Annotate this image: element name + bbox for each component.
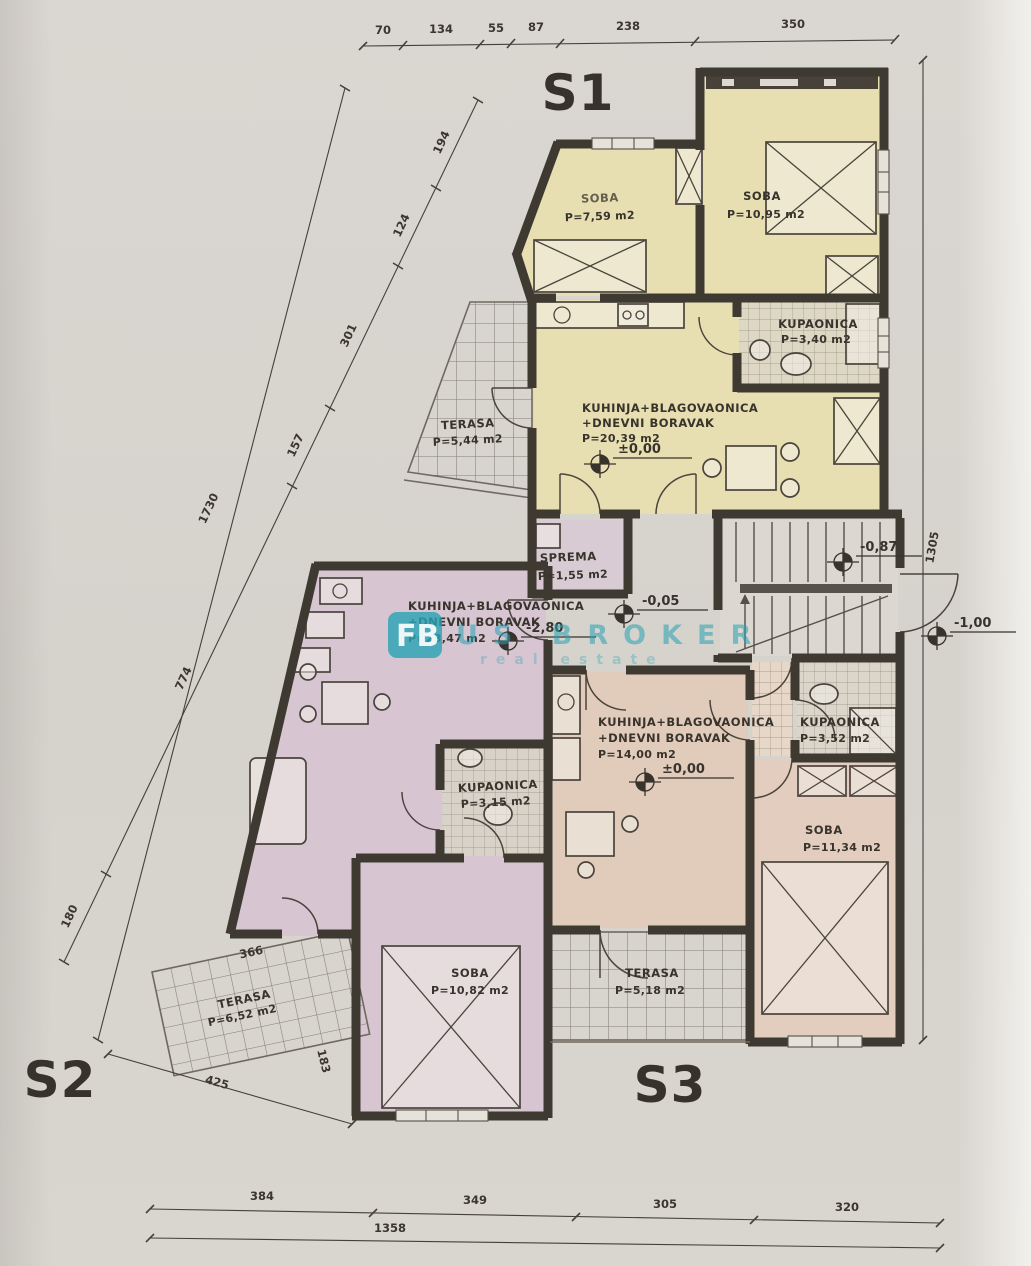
s1-toilet (781, 353, 811, 375)
s2-chair (300, 664, 316, 680)
entry-door-arc (900, 574, 958, 632)
svg-text:183: 183 (314, 1048, 333, 1075)
s3-bath-area: P=3,52 m2 (800, 732, 870, 745)
unit-label-s2: S2 (24, 1051, 97, 1109)
svg-text:-0,05: -0,05 (642, 594, 679, 609)
svg-text:301: 301 (337, 321, 360, 349)
s3-soba-area: P=11,34 m2 (803, 841, 881, 854)
s2-dining-table (322, 682, 368, 724)
s2-soba-area: P=10,82 m2 (431, 984, 509, 997)
s1-kitchen-l1: KUHINJA+BLAGOVAONICA (582, 401, 758, 415)
svg-text:55: 55 (488, 21, 504, 35)
svg-text:87: 87 (528, 20, 544, 34)
s3-toilet (810, 684, 838, 704)
s3-kitchen-area: P=14,00 m2 (598, 748, 676, 761)
s2-chair (374, 694, 390, 710)
svg-text:1730: 1730 (195, 491, 221, 526)
svg-text:124: 124 (390, 211, 413, 239)
s2-counter-a (320, 578, 362, 604)
s1-soba-big-area: P=10,95 m2 (727, 208, 805, 221)
svg-text:425: 425 (204, 1072, 231, 1092)
s1-bath-label: KUPAONICA (778, 317, 858, 331)
s1-kitchen-counter (534, 302, 684, 328)
s1-bath-area: P=3,40 m2 (781, 333, 851, 346)
watermark-logo-text: FB (396, 619, 439, 654)
s3-chair (622, 816, 638, 832)
s3-terrace-label: TERASA (625, 966, 679, 980)
svg-text:320: 320 (835, 1200, 859, 1214)
s1-soba-small-area: P=7,59 m2 (565, 209, 635, 224)
svg-text:-1,00: -1,00 (954, 616, 991, 631)
svg-text:180: 180 (58, 902, 81, 930)
s3-soba-label: SOBA (805, 823, 843, 837)
svg-text:350: 350 (781, 17, 805, 31)
svg-text:-0,87: -0,87 (860, 540, 897, 555)
s3-kitchen-l2: +DNEVNI BORAVAK (598, 731, 731, 745)
s1-terrace-label: TERASA (441, 416, 495, 433)
svg-text:70: 70 (375, 23, 391, 37)
s1-soba-big-label: SOBA (743, 189, 781, 203)
svg-text:384: 384 (250, 1189, 274, 1203)
sprema-label: SPREMA (540, 549, 597, 565)
sprema-area: P=1,55 m2 (538, 568, 608, 583)
dimension-top-chain: 70 134 55 87 238 350 (359, 17, 899, 50)
watermark-subtext: real estate (480, 652, 665, 668)
unit-label-s1: S1 (542, 64, 615, 122)
s2-washbasin (458, 749, 482, 767)
svg-text:134: 134 (429, 22, 453, 36)
floor-plan-drawing: SOBA P=7,59 m2 SOBA P=10,95 m2 KUPAONICA… (0, 0, 1031, 1266)
s1-terrace-deck (408, 302, 532, 490)
s3-bath-label: KUPAONICA (800, 715, 880, 729)
elevation-entry: -1,00 (921, 616, 1016, 650)
s3-terrace-area: P=5,18 m2 (615, 984, 685, 997)
s1-chair (781, 443, 799, 461)
s1-kitchen-l2: +DNEVNI BORAVAK (582, 416, 715, 430)
watermark-brand-text: US BROKER (456, 620, 766, 651)
dimension-right-chain: 1305 (919, 56, 942, 1044)
s2-counter-b (306, 612, 344, 638)
s3-dining-table (566, 812, 614, 856)
s3-counter-a (552, 676, 580, 734)
svg-text:238: 238 (616, 19, 640, 33)
s3-chair (578, 862, 594, 878)
s1-shower (846, 304, 880, 364)
svg-text:±0,00: ±0,00 (618, 442, 661, 457)
s1-soba-small-label: SOBA (581, 190, 619, 205)
dimension-bottom-chain: 384 349 305 320 1358 (146, 1189, 944, 1252)
svg-text:349: 349 (463, 1193, 487, 1207)
s3-counter-b (552, 738, 580, 780)
svg-text:305: 305 (653, 1197, 677, 1211)
s3-kitchen-l1: KUHINJA+BLAGOVAONICA (598, 715, 774, 729)
s1-chair (703, 459, 721, 477)
s1-dining-table (726, 446, 776, 490)
unit-label-s3: S3 (634, 1056, 707, 1114)
s2-kitchen-l1: KUHINJA+BLAGOVAONICA (408, 599, 584, 613)
svg-text:194: 194 (430, 128, 453, 156)
stair-landing (740, 584, 892, 593)
s2-chair (300, 706, 316, 722)
floor-plan-scan: SOBA P=7,59 m2 SOBA P=10,95 m2 KUPAONICA… (0, 0, 1031, 1266)
svg-text:1305: 1305 (922, 530, 941, 564)
svg-text:±0,00: ±0,00 (662, 762, 705, 777)
s1-chair (781, 479, 799, 497)
dim-bottom-total: 1358 (374, 1221, 406, 1235)
svg-text:157: 157 (284, 431, 307, 459)
s2-soba-label: SOBA (451, 966, 489, 980)
s1-washbasin (750, 340, 770, 360)
s3-vestibule-tiles (752, 662, 793, 756)
sprema-shelf (536, 524, 560, 548)
